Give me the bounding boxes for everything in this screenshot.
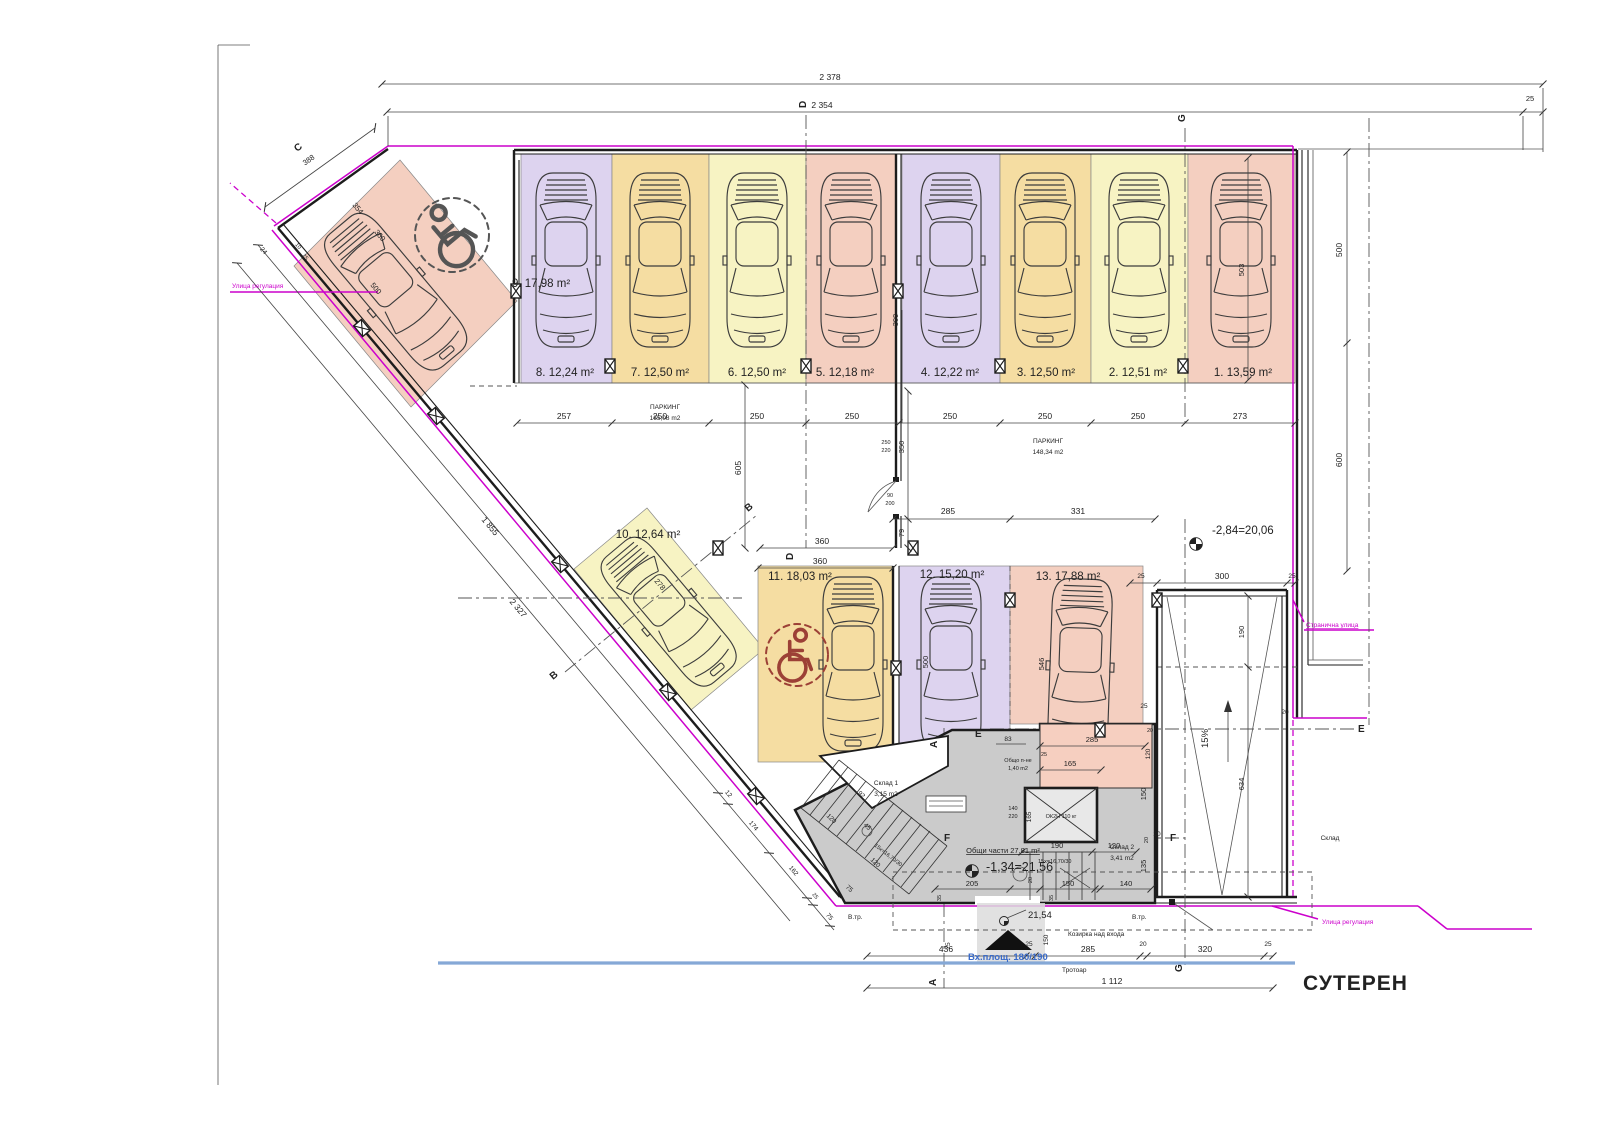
- level-garage: -2,84=20,06: [1212, 525, 1274, 537]
- lobby-area: 1,40 m2: [1008, 766, 1028, 772]
- dim-bot-25b: 25: [1264, 941, 1272, 948]
- vtr-right-label: В.тр.: [1132, 914, 1147, 921]
- dim-row-7: 273: [1233, 411, 1247, 421]
- dim-bot-285: 285: [1081, 944, 1095, 954]
- dim-row-4: 250: [943, 411, 957, 421]
- stall-fills: [294, 154, 1295, 788]
- dim-core-135: 135: [1139, 860, 1148, 873]
- dim-diag-12: 12: [723, 789, 733, 799]
- dim-row-2: 250: [750, 411, 764, 421]
- lobby-name: Общо п-не: [1004, 758, 1031, 764]
- floor-plan-sheet: 1. 13,59 m² 2. 12,51 m² 3. 12,50 m² 4. 1…: [0, 0, 1600, 1131]
- dim-core-150a: 150: [1139, 788, 1148, 801]
- dim-diag-2327: 2 327: [508, 597, 530, 620]
- dim-ramp-25c: 25: [1140, 703, 1148, 710]
- stall-8-label: 8. 12,24 m²: [536, 367, 594, 379]
- dim-ramp-25b: 25: [1288, 573, 1296, 580]
- dim-bot-25a: 25: [1025, 941, 1033, 948]
- dim-core-150b: 150: [1062, 879, 1075, 888]
- entrance-area-label: Вх.площ. 180/190: [968, 952, 1048, 963]
- ramp: [1157, 590, 1287, 930]
- dim-diag-1855: 1 855: [480, 515, 502, 538]
- stall-5-label: 5. 12,18 m²: [816, 367, 874, 379]
- dim-bot-436: 436: [939, 944, 953, 954]
- dim-331: 331: [1071, 506, 1085, 516]
- dim-285: 285: [941, 506, 955, 516]
- stall-2-label: 2. 12,51 m²: [1109, 367, 1167, 379]
- stall-3-label: 3. 12,50 m²: [1017, 367, 1075, 379]
- dim-500-right: 500: [1334, 243, 1344, 257]
- ramp-slope-label: 15%: [1200, 728, 1211, 748]
- building-core: [795, 724, 1155, 963]
- dim-s12-500: 500: [921, 656, 930, 669]
- dim-row-5: 250: [1038, 411, 1052, 421]
- stall-12-label: 12. 15,20 m²: [920, 569, 985, 581]
- dim-350: 350: [897, 441, 906, 454]
- dim-door3-a: 140: [1008, 806, 1017, 812]
- dim-core-140: 140: [1120, 879, 1133, 888]
- dim-360a: 360: [815, 536, 829, 546]
- dim-row-1: 250: [653, 411, 667, 421]
- dim-core-35a: 35: [937, 895, 943, 901]
- dim-600-right: 600: [1334, 453, 1344, 467]
- grid-g-bottom: G: [1174, 964, 1185, 972]
- dim-diag-75: 75: [824, 912, 834, 922]
- dim-core-35b: 35: [1049, 895, 1055, 901]
- dim-door2-b: 200: [885, 501, 894, 507]
- elevator-label: ОК2Н 110 кг: [1046, 814, 1077, 820]
- grid-a-bottom: A: [928, 979, 939, 986]
- dim-core-83: 83: [1004, 736, 1012, 743]
- dim-ramp-634: 634: [1237, 778, 1246, 791]
- sheet-border: [218, 45, 250, 1085]
- dim-row-0: 257: [557, 411, 571, 421]
- dim-row-3: 250: [845, 411, 859, 421]
- dim-core-20a: 20: [1147, 728, 1153, 734]
- dim-core-165: 165: [1064, 759, 1077, 768]
- grid-g-top: G: [1177, 114, 1188, 122]
- stall-13-label: 13. 17,88 m²: [1036, 571, 1101, 583]
- dim-core-25: 25: [1041, 752, 1047, 758]
- dim-diag-174: 174: [747, 820, 760, 833]
- storage2-area: 3,41 m2: [1110, 855, 1134, 862]
- dim-ramp-300: 300: [1215, 571, 1229, 581]
- grid-f-left: F: [944, 833, 950, 844]
- dim-core-285: 285: [1086, 735, 1099, 744]
- sidewalk-label: Тротоар: [1062, 967, 1087, 974]
- sheet-title: СУТЕРЕН: [1303, 972, 1408, 995]
- dim-door3-b: 220: [1008, 814, 1017, 820]
- dim-ramp-20a: 20: [1281, 709, 1289, 716]
- stall-6-label: 6. 12,50 m²: [728, 367, 786, 379]
- dim-core-20c: 20: [1028, 877, 1034, 883]
- dim-s9-388: 388: [301, 153, 316, 168]
- common-areas-label: Общи части 27,81 m²: [966, 846, 1040, 855]
- storage1-area: 3,15 m2: [874, 791, 898, 798]
- dim-door2-a: 90: [887, 493, 893, 499]
- dim-core-120c: 120: [1108, 841, 1121, 850]
- dim-605: 605: [733, 461, 743, 475]
- stall-7-label: 7. 12,50 m²: [631, 367, 689, 379]
- dim-door1-b: 220: [881, 448, 890, 454]
- dim-360b: 360: [813, 556, 827, 566]
- vtr-left-label: В.тр.: [848, 914, 863, 921]
- dim-s13-546: 546: [1037, 658, 1046, 671]
- dim-bot-320: 320: [1198, 944, 1212, 954]
- dim-503: 503: [1237, 264, 1246, 277]
- grid-e-right: E: [1358, 724, 1365, 735]
- floor-plan-drawing: 1. 13,59 m² 2. 12,51 m² 3. 12,50 m² 4. 1…: [0, 0, 1600, 1131]
- dim-ramp-190: 190: [1237, 626, 1246, 639]
- regulation-left-label: Улица регулация: [232, 283, 284, 290]
- storage1-name: Склад 1: [874, 780, 899, 787]
- zone-2-area: 148,34 m2: [1033, 449, 1064, 456]
- stair-formula-right: 15x=16,70/30: [1038, 859, 1072, 865]
- dim-ramp-20b: 20: [1153, 831, 1161, 838]
- stall-11-label: 11. 18,03 m²: [768, 571, 832, 583]
- grid-d-top: D: [798, 101, 809, 108]
- grid-b-low: B: [548, 669, 561, 682]
- stall-1-label: 1. 13,59 m²: [1214, 367, 1272, 379]
- stall-4-label: 4. 12,22 m²: [921, 367, 979, 379]
- dim-core-205: 205: [966, 879, 979, 888]
- stall-9-label: 9. 17,98 m²: [512, 278, 570, 290]
- grid-a-top: A: [929, 741, 940, 748]
- dim-top-outer: 2 378: [819, 72, 841, 82]
- dim-bot-20: 20: [1139, 941, 1147, 948]
- zone-1-name: ПАРКИНГ: [650, 404, 680, 411]
- dim-door1-a: 250: [881, 440, 890, 446]
- grid-d-mid: D: [785, 553, 796, 560]
- dim-bot-1112: 1 112: [1102, 976, 1123, 986]
- dim-top-off: 25: [1526, 94, 1534, 103]
- dim-row-6: 250: [1131, 411, 1145, 421]
- dim-core-190: 190: [1051, 841, 1064, 850]
- grid-e-left: E: [975, 729, 982, 740]
- stall-10-label: 10. 12,64 m²: [616, 529, 681, 541]
- grid-f-right: F: [1170, 833, 1176, 844]
- dim-entry-150: 150: [1043, 934, 1050, 945]
- level-entrance: 21,54: [1028, 910, 1052, 921]
- dim-core-20b: 20: [1144, 837, 1150, 843]
- dim-ramp-120: 120: [1145, 748, 1152, 759]
- zone-2-name: ПАРКИНГ: [1033, 438, 1063, 445]
- canopy-label: Козирка над входа: [1068, 931, 1125, 938]
- dim-309: 309: [891, 314, 900, 327]
- dim-79: 79: [897, 529, 906, 537]
- dim-diag-25: 25: [810, 892, 819, 901]
- dim-top-inner: 2 354: [811, 100, 833, 110]
- dim-ramp-25a: 25: [1137, 573, 1145, 580]
- grid-c: C: [292, 141, 304, 154]
- neighbor-storage-label: Склад: [1321, 835, 1340, 842]
- regulation-right-label: Улица регулация: [1322, 919, 1374, 926]
- dim-core-165b: 165: [1026, 811, 1033, 822]
- side-street-label: Странична улица: [1306, 622, 1359, 629]
